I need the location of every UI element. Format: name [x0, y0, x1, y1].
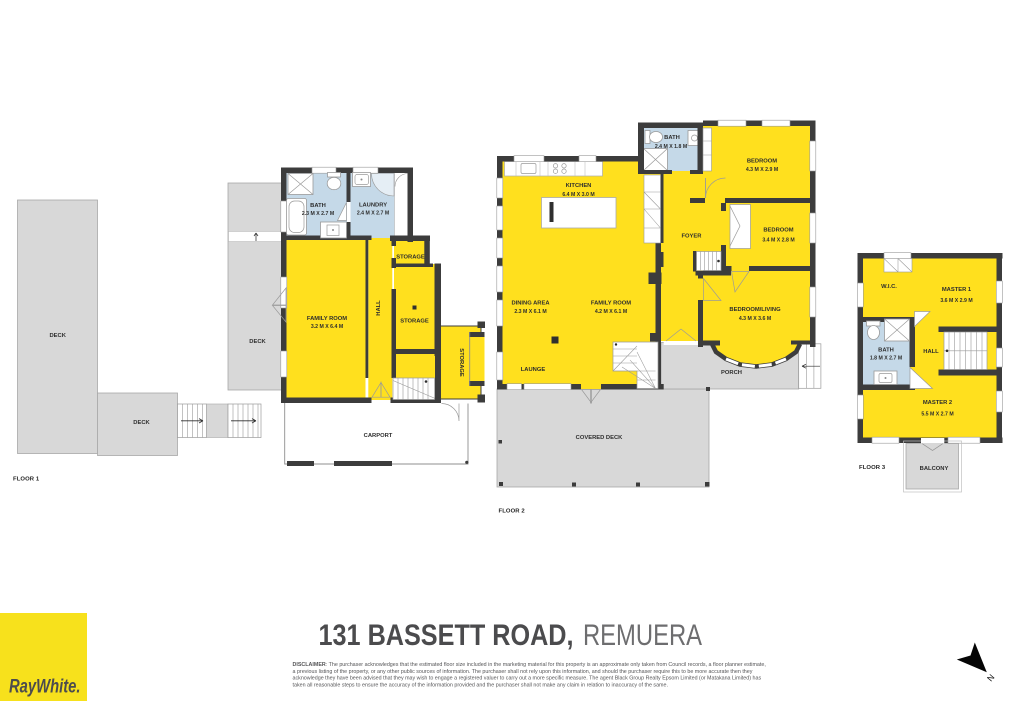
svg-text:STORAGE: STORAGE	[458, 348, 464, 377]
svg-text:BATH: BATH	[878, 348, 894, 354]
svg-text:3.2 M X 6.4 M: 3.2 M X 6.4 M	[311, 324, 343, 330]
svg-text:2.4 M X 1.8 M: 2.4 M X 1.8 M	[655, 144, 687, 150]
svg-text:DINING AREA: DINING AREA	[511, 301, 550, 307]
svg-text:DISCLAIMER: The purchaser ackn: DISCLAIMER: The purchaser acknowledges t…	[293, 662, 766, 668]
svg-text:REMUERA: REMUERA	[583, 619, 702, 652]
svg-text:BALCONY: BALCONY	[920, 466, 949, 472]
svg-text:KITCHEN: KITCHEN	[566, 183, 592, 189]
svg-text:BEDROOM: BEDROOM	[747, 159, 777, 165]
svg-text:DECK: DECK	[249, 339, 266, 345]
svg-text:FAMILY ROOM: FAMILY ROOM	[591, 301, 631, 307]
svg-text:5.5 M X 2.7 M: 5.5 M X 2.7 M	[921, 412, 953, 418]
svg-text:LAUNDRY: LAUNDRY	[359, 203, 387, 209]
svg-text:4.3 M X 2.9 M: 4.3 M X 2.9 M	[746, 167, 778, 173]
svg-text:3.4 M X 2.8 M: 3.4 M X 2.8 M	[762, 238, 794, 244]
svg-text:taken all reasonable steps to: taken all reasonable steps to ensure the…	[293, 682, 668, 688]
svg-text:COVERED DECK: COVERED DECK	[576, 435, 624, 441]
svg-text:FLOOR 2: FLOOR 2	[499, 509, 526, 515]
svg-text:STORAGE: STORAGE	[400, 319, 429, 325]
svg-text:LAUNGE: LAUNGE	[521, 367, 546, 373]
svg-text:DECK: DECK	[133, 420, 150, 426]
svg-text:FOYER: FOYER	[682, 234, 703, 240]
svg-text:STORAGE: STORAGE	[396, 255, 425, 261]
svg-text:acknowledge they have been adv: acknowledge they have been advised that …	[293, 676, 762, 682]
svg-text:3.6 M X 2.9 M: 3.6 M X 2.9 M	[940, 298, 972, 304]
svg-text:2.3 M X 6.1 M: 2.3 M X 6.1 M	[514, 309, 546, 315]
svg-text:MASTER 2: MASTER 2	[923, 400, 952, 406]
svg-text:2.4 M X 2.7 M: 2.4 M X 2.7 M	[357, 210, 389, 216]
svg-text:6.4 M X 3.0 M: 6.4 M X 3.0 M	[562, 192, 594, 198]
svg-text:BATH: BATH	[310, 203, 326, 209]
svg-text:a previous listing of the prop: a previous listing of the property, or a…	[293, 669, 753, 675]
svg-text:BEDROOM/LIVING: BEDROOM/LIVING	[729, 307, 781, 313]
svg-text:FAMILY ROOM: FAMILY ROOM	[307, 316, 347, 322]
svg-text:W.I.C.: W.I.C.	[881, 284, 897, 290]
svg-text:FLOOR 1: FLOOR 1	[13, 477, 40, 483]
svg-text:PORCH: PORCH	[721, 370, 742, 376]
svg-text:HALL: HALL	[376, 300, 382, 316]
svg-text:4.2 M X 6.1 M: 4.2 M X 6.1 M	[595, 309, 627, 315]
svg-text:BATH: BATH	[664, 135, 680, 141]
svg-text:HALL: HALL	[923, 349, 939, 355]
svg-text:2.3 M X 2.7 M: 2.3 M X 2.7 M	[302, 211, 334, 217]
svg-text:BEDROOM: BEDROOM	[763, 228, 793, 234]
svg-text:RayWhite.: RayWhite.	[9, 676, 81, 698]
svg-text:CARPORT: CARPORT	[364, 433, 393, 439]
svg-text:DECK: DECK	[49, 333, 66, 339]
svg-text:MASTER 1: MASTER 1	[942, 287, 972, 293]
svg-text:1.8 M X 2.7 M: 1.8 M X 2.7 M	[870, 355, 902, 361]
svg-text:131 BASSETT ROAD,: 131 BASSETT ROAD,	[319, 619, 574, 652]
svg-text:4.3 M X 3.6 M: 4.3 M X 3.6 M	[739, 316, 771, 322]
svg-text:FLOOR 3: FLOOR 3	[859, 465, 886, 471]
